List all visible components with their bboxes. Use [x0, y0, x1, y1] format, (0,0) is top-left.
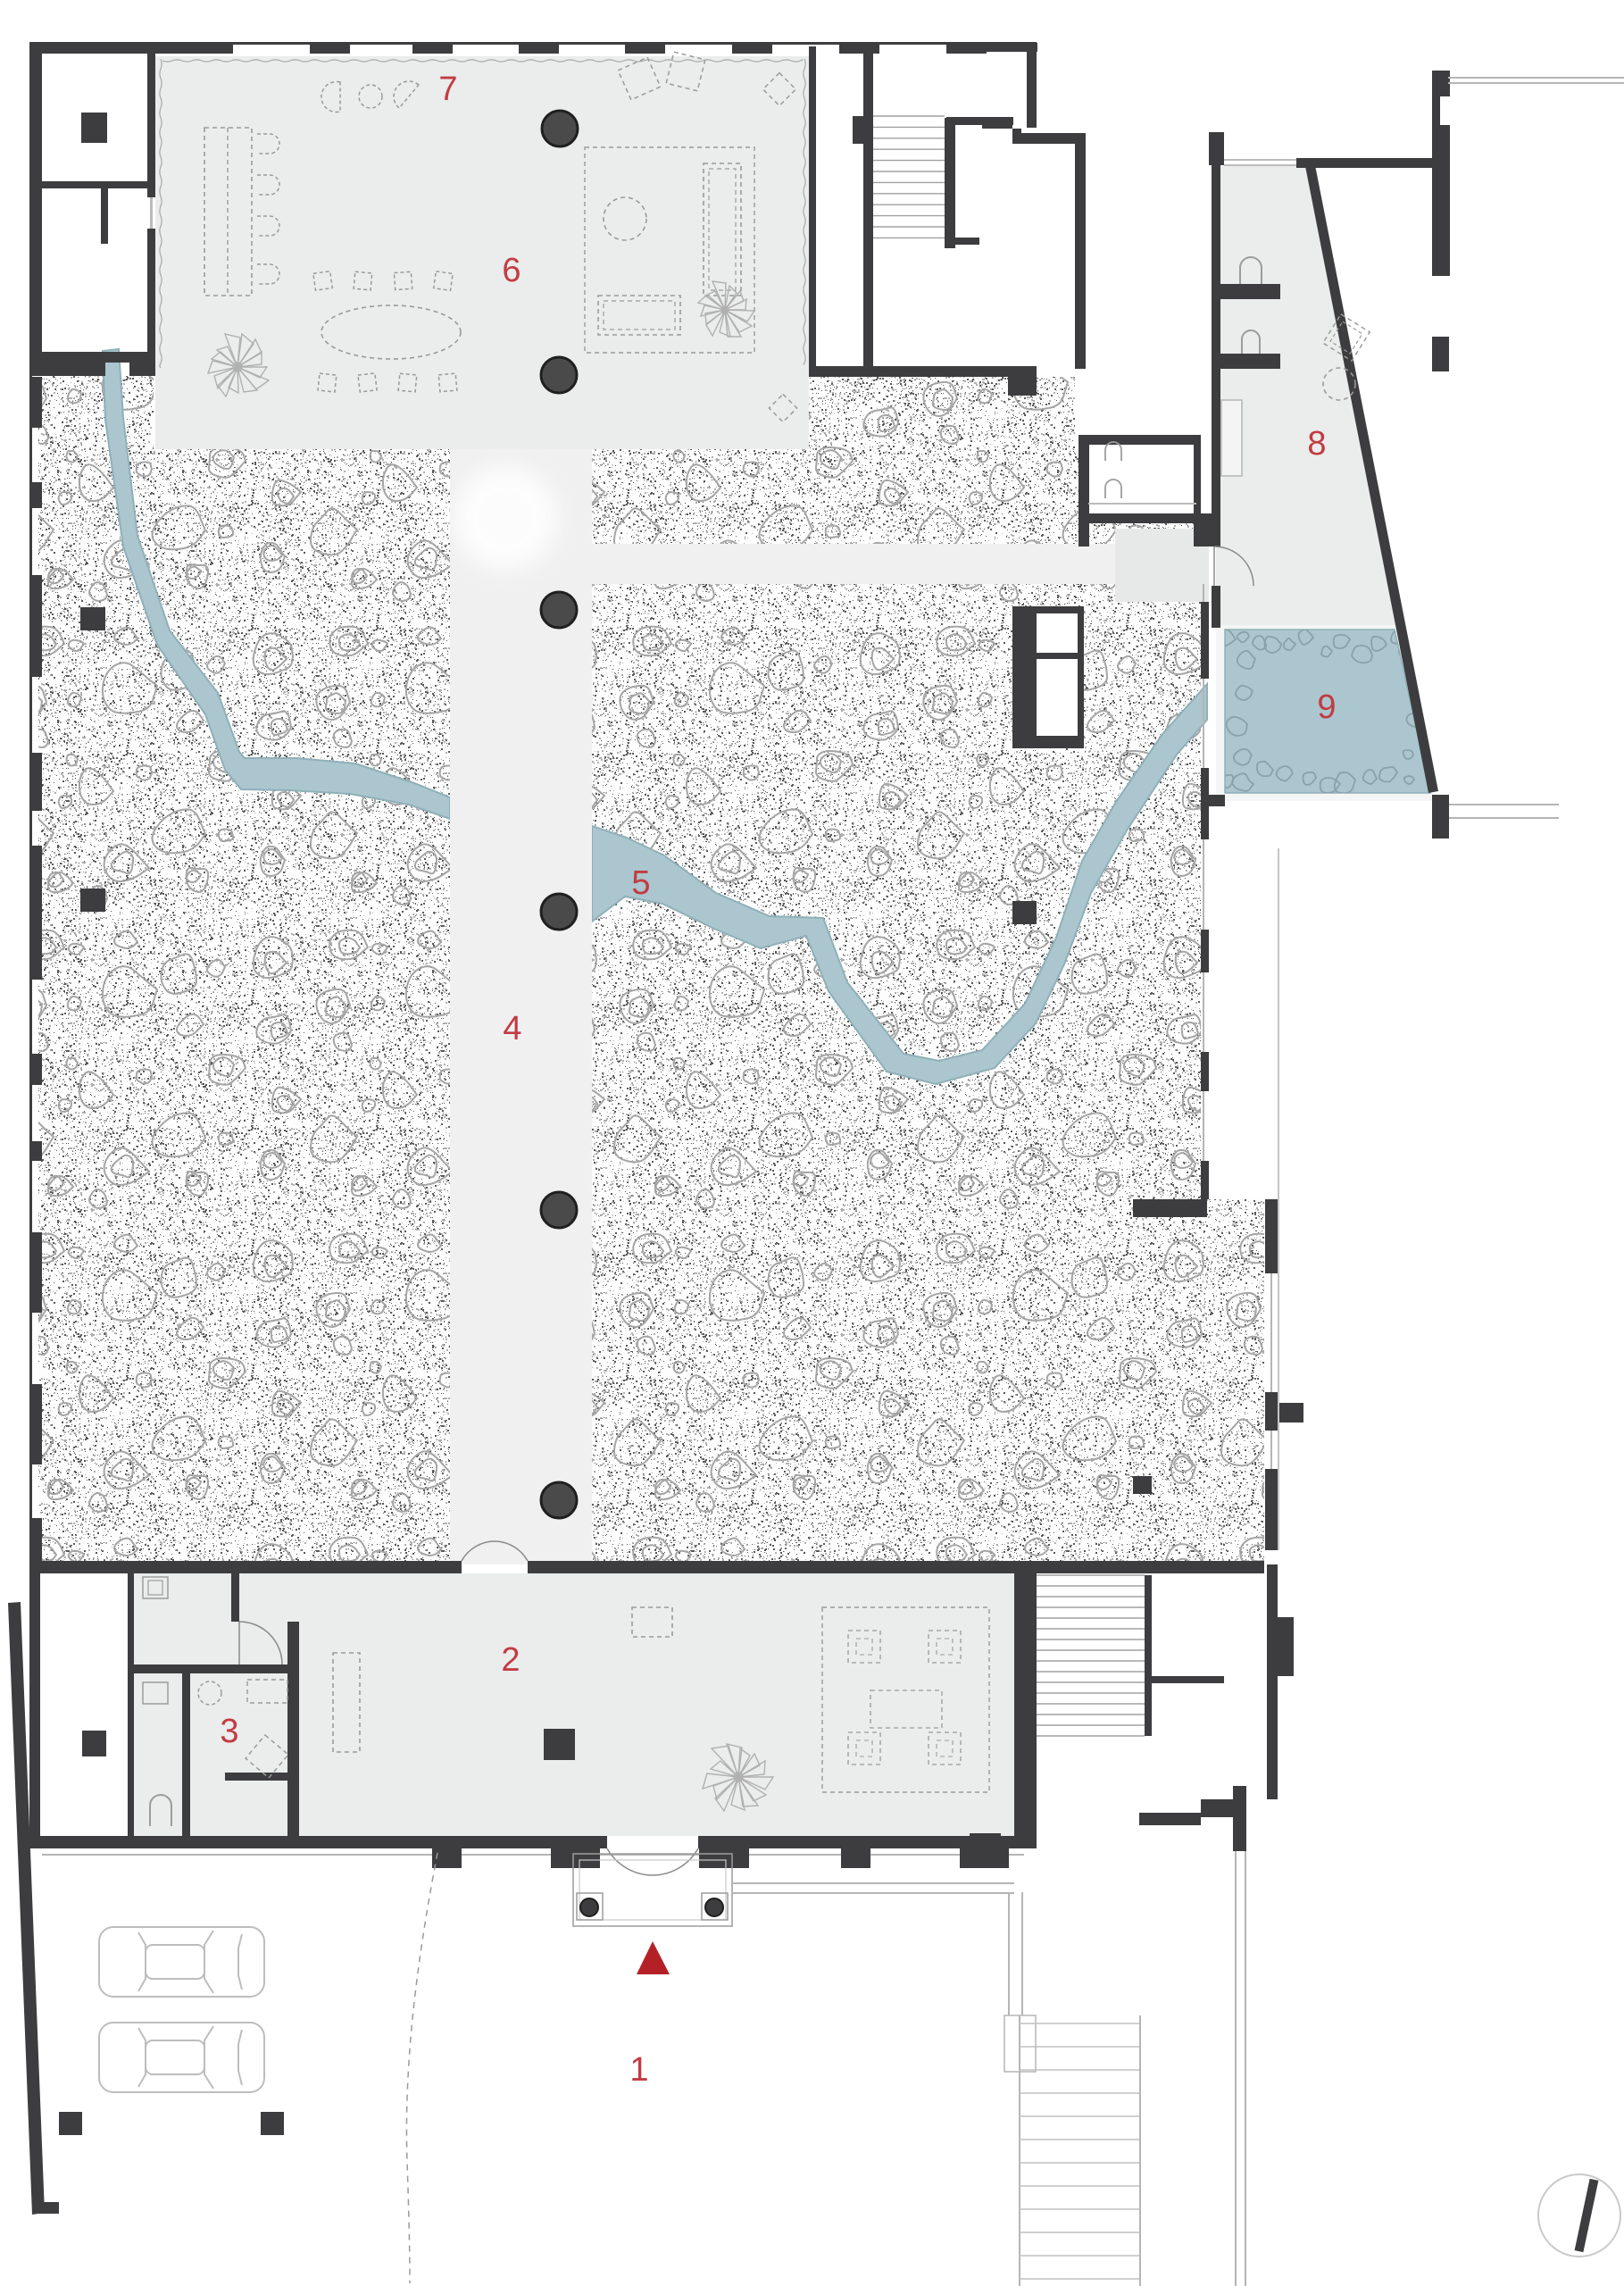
svg-text:4: 4 — [503, 1010, 521, 1047]
svg-text:6: 6 — [502, 252, 521, 289]
svg-text:3: 3 — [220, 1713, 238, 1750]
svg-text:9: 9 — [1317, 688, 1336, 726]
svg-text:2: 2 — [501, 1641, 520, 1679]
svg-text:1: 1 — [629, 2051, 648, 2089]
svg-text:5: 5 — [631, 864, 650, 902]
svg-text:8: 8 — [1307, 425, 1326, 463]
svg-text:7: 7 — [438, 71, 457, 108]
